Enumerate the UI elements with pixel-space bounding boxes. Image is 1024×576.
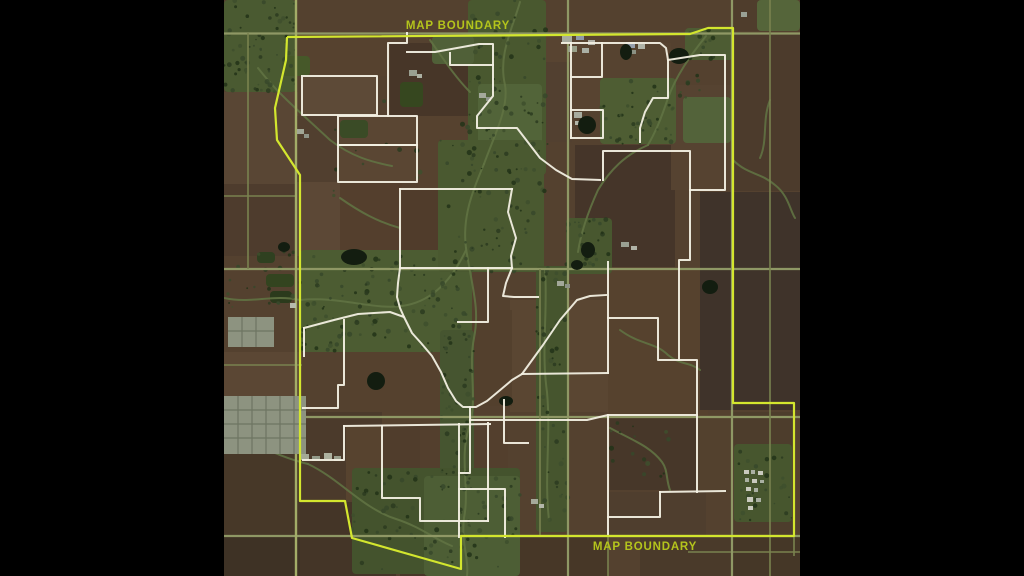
screenshot-root: MAP BOUNDARY MAP BOUNDARY <box>0 0 1024 576</box>
pillarbox-right <box>800 0 1024 576</box>
map-boundary-label-top: MAP BOUNDARY <box>406 20 510 32</box>
map-layers <box>224 0 800 576</box>
satellite-map: MAP BOUNDARY MAP BOUNDARY <box>224 0 800 576</box>
pillarbox-left <box>0 0 224 576</box>
map-boundary-label-bottom: MAP BOUNDARY <box>593 541 697 553</box>
